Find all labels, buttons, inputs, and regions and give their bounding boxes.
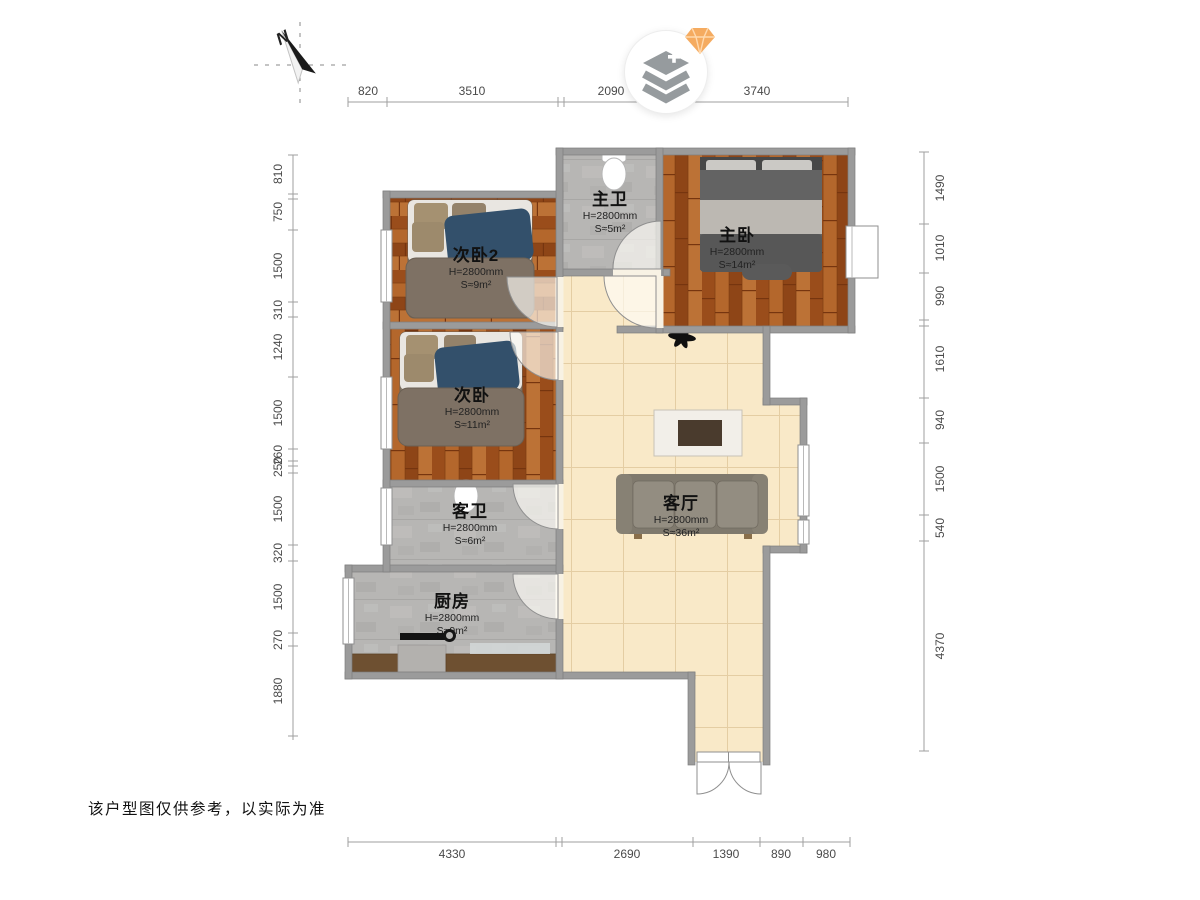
dim-bottom-2: 1390 <box>713 847 740 861</box>
dim-left-5: 1500 <box>271 400 285 427</box>
room-height: H=2800mm <box>654 514 709 527</box>
dim-left-4: 1240 <box>271 334 285 361</box>
room-label-master-bath: 主卫 H=2800mm S≈5m² <box>583 190 638 236</box>
dim-right-3: 1610 <box>933 346 947 373</box>
dim-top-2: 2090 <box>598 84 625 98</box>
floorplan-drawing <box>0 0 1200 900</box>
disclaimer-text: 该户型图仅供参考，以实际为准 <box>88 797 326 819</box>
dim-right-4: 940 <box>933 410 947 430</box>
dim-left-3: 310 <box>271 300 285 320</box>
gem-icon <box>682 22 718 58</box>
room-height: H=2800mm <box>449 266 504 279</box>
room-area: S≈5m² <box>583 223 638 236</box>
dim-left-12: 1880 <box>271 678 285 705</box>
dim-right-7: 4370 <box>933 633 947 660</box>
dim-left-1: 750 <box>271 202 285 222</box>
room-label-master-bedroom: 主卧 H=2800mm S≈14m² <box>710 226 765 272</box>
dim-left-11: 270 <box>271 630 285 650</box>
dim-right-0: 1490 <box>933 175 947 202</box>
tv-table <box>654 410 742 456</box>
dim-left-0: 810 <box>271 164 285 184</box>
room-area: S≈14m² <box>710 259 765 272</box>
dim-right-2: 990 <box>933 286 947 306</box>
room-label-bedroom: 次卧 H=2800mm S≈11m² <box>445 386 500 432</box>
room-area: S≈11m² <box>445 419 500 432</box>
dim-left-2: 1500 <box>271 253 285 280</box>
room-name: 厨房 <box>425 592 480 612</box>
dim-bottom-0: 4330 <box>439 847 466 861</box>
room-area: S≈9m² <box>449 279 504 292</box>
room-name: 主卧 <box>710 226 765 246</box>
room-height: H=2800mm <box>583 210 638 223</box>
room-height: H=2800mm <box>710 246 765 259</box>
dim-left-9: 320 <box>271 543 285 563</box>
toilet-icon <box>602 152 626 190</box>
dim-right-5: 1500 <box>933 466 947 493</box>
room-height: H=2800mm <box>425 612 480 625</box>
dim-bottom-4: 980 <box>816 847 836 861</box>
room-height: H=2800mm <box>445 406 500 419</box>
room-name: 客卫 <box>443 502 498 522</box>
room-name: 次卧 <box>445 386 500 406</box>
dim-left-8: 1500 <box>271 496 285 523</box>
room-name: 主卫 <box>583 190 638 210</box>
room-label-guest-bath: 客卫 H=2800mm S≈6m² <box>443 502 498 548</box>
room-name: 次卧2 <box>449 246 504 266</box>
bay-window <box>846 226 878 278</box>
room-label-bedroom2: 次卧2 H=2800mm S≈9m² <box>449 246 504 292</box>
room-height: H=2800mm <box>443 522 498 535</box>
dim-right-1: 1010 <box>933 235 947 262</box>
room-name: 客厅 <box>654 494 709 514</box>
dim-bottom-3: 890 <box>771 847 791 861</box>
dim-left-7: 250 <box>271 457 285 477</box>
dim-top-3: 3740 <box>744 84 771 98</box>
dim-bottom-1: 2690 <box>614 847 641 861</box>
room-area: S≈36m² <box>654 527 709 540</box>
floorplan-canvas: N 次卧2 H=2800mm S≈9m² 主卫 H=2800mm S≈5m² 主… <box>0 0 1200 900</box>
burner-icon <box>443 629 456 642</box>
room-area: S≈6m² <box>443 535 498 548</box>
stove-icon <box>400 633 447 640</box>
entry-double-door <box>697 752 761 794</box>
room-label-living: 客厅 H=2800mm S≈36m² <box>654 494 709 540</box>
dim-top-1: 3510 <box>459 84 486 98</box>
dim-right-6: 540 <box>933 518 947 538</box>
dim-top-0: 820 <box>358 84 378 98</box>
compass-north-icon: N <box>248 16 352 116</box>
dim-left-10: 1500 <box>271 584 285 611</box>
